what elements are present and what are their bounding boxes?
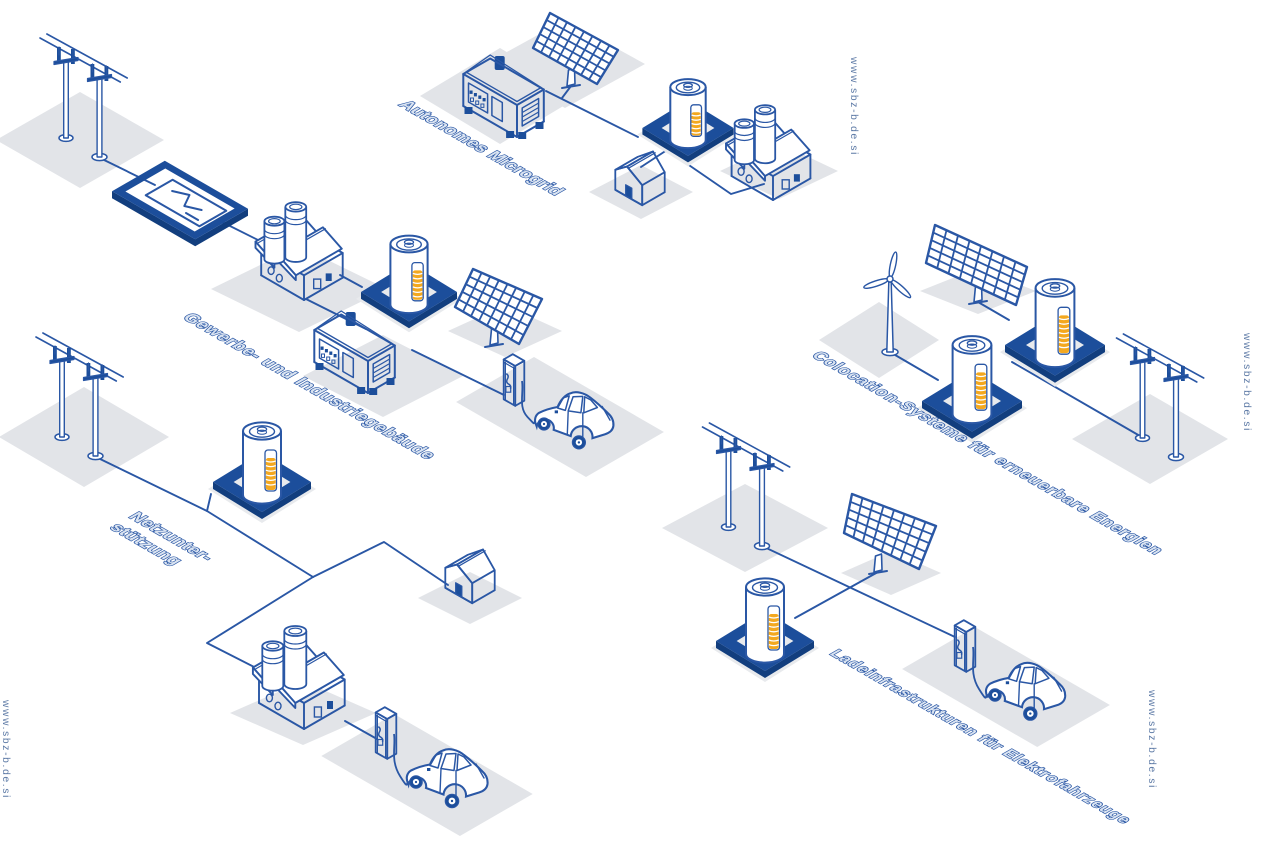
svg-text:www.sbz-b.de.si: www.sbz-b.de.si [0, 699, 11, 799]
svg-text:www.sbz-b.de.si: www.sbz-b.de.si [1241, 332, 1252, 432]
svg-text:www.sbz-b.de.si: www.sbz-b.de.si [848, 56, 859, 156]
svg-text:www.sbz-b.de.si: www.sbz-b.de.si [1146, 689, 1157, 789]
